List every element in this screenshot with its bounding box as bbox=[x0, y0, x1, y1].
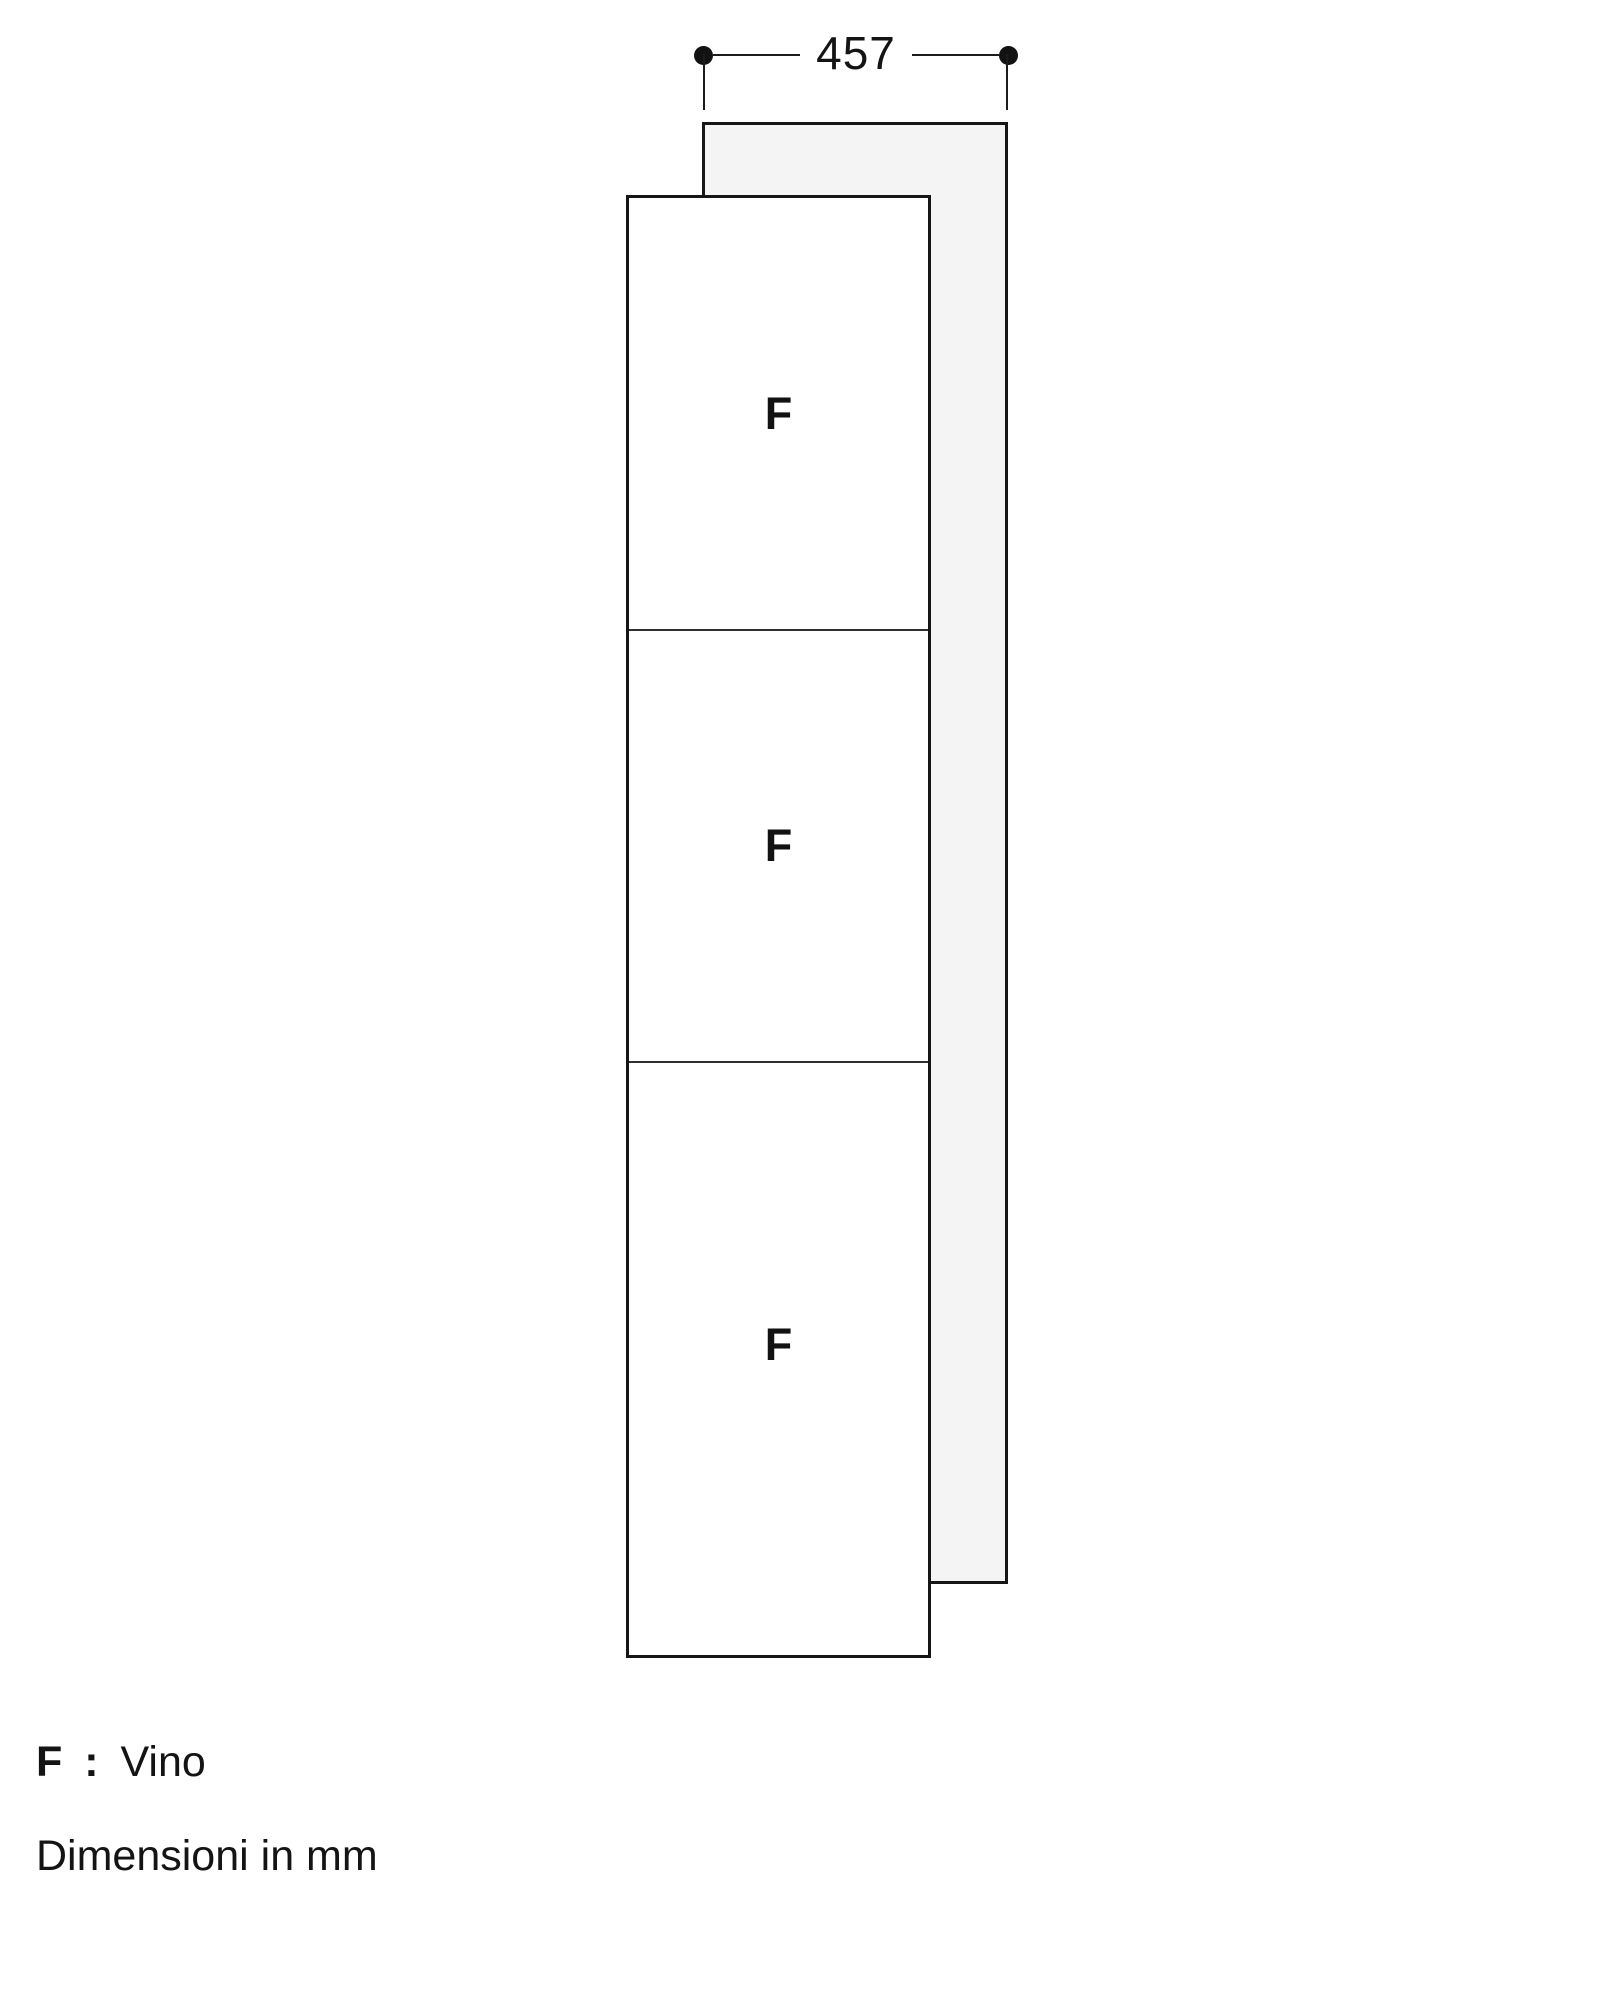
compartment-middle: F bbox=[629, 629, 928, 1061]
dimension-line-right-segment bbox=[912, 54, 999, 56]
compartment-label: F bbox=[765, 391, 793, 436]
compartment-label: F bbox=[765, 823, 793, 868]
legend-symbol: F bbox=[36, 1738, 62, 1786]
legend: F : Vino bbox=[36, 1738, 206, 1787]
compartment-label: F bbox=[765, 1322, 793, 1367]
legend-meaning: Vino bbox=[121, 1738, 206, 1786]
units-note: Dimensioni in mm bbox=[36, 1832, 378, 1881]
appliance-front-panel: F F F bbox=[626, 195, 931, 1658]
dimension-extension-line-left bbox=[703, 54, 705, 110]
dimension-extension-line-right bbox=[1006, 54, 1008, 110]
compartment-top: F bbox=[629, 198, 928, 629]
dimension-endpoint-right-dot-icon bbox=[999, 46, 1018, 65]
installation-drawing: 457 F F F F : Vino Dimensioni in mm bbox=[0, 0, 1621, 2000]
compartment-bottom: F bbox=[629, 1061, 928, 1655]
dimension-value: 457 bbox=[816, 30, 896, 80]
legend-separator: : bbox=[84, 1738, 98, 1786]
dimension-line-left-segment bbox=[713, 54, 800, 56]
width-dimension: 457 bbox=[694, 30, 1018, 80]
